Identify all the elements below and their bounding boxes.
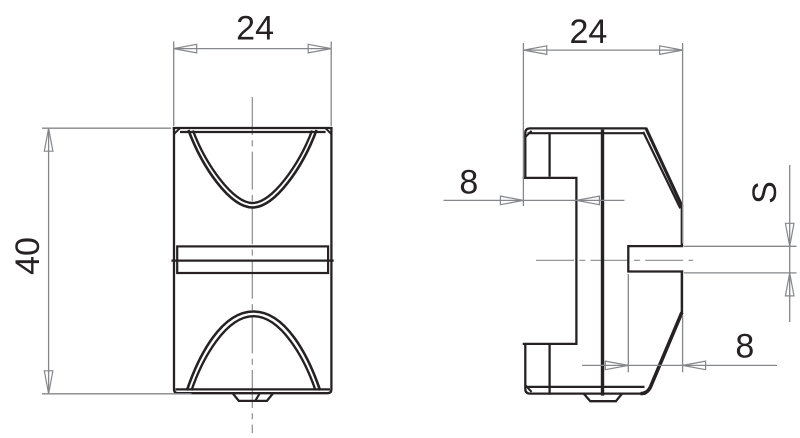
svg-text:S: S — [746, 181, 784, 204]
svg-text:40: 40 — [9, 237, 47, 275]
svg-text:8: 8 — [735, 328, 754, 366]
svg-text:24: 24 — [569, 13, 607, 51]
svg-text:8: 8 — [459, 163, 478, 201]
svg-text:24: 24 — [236, 10, 274, 48]
